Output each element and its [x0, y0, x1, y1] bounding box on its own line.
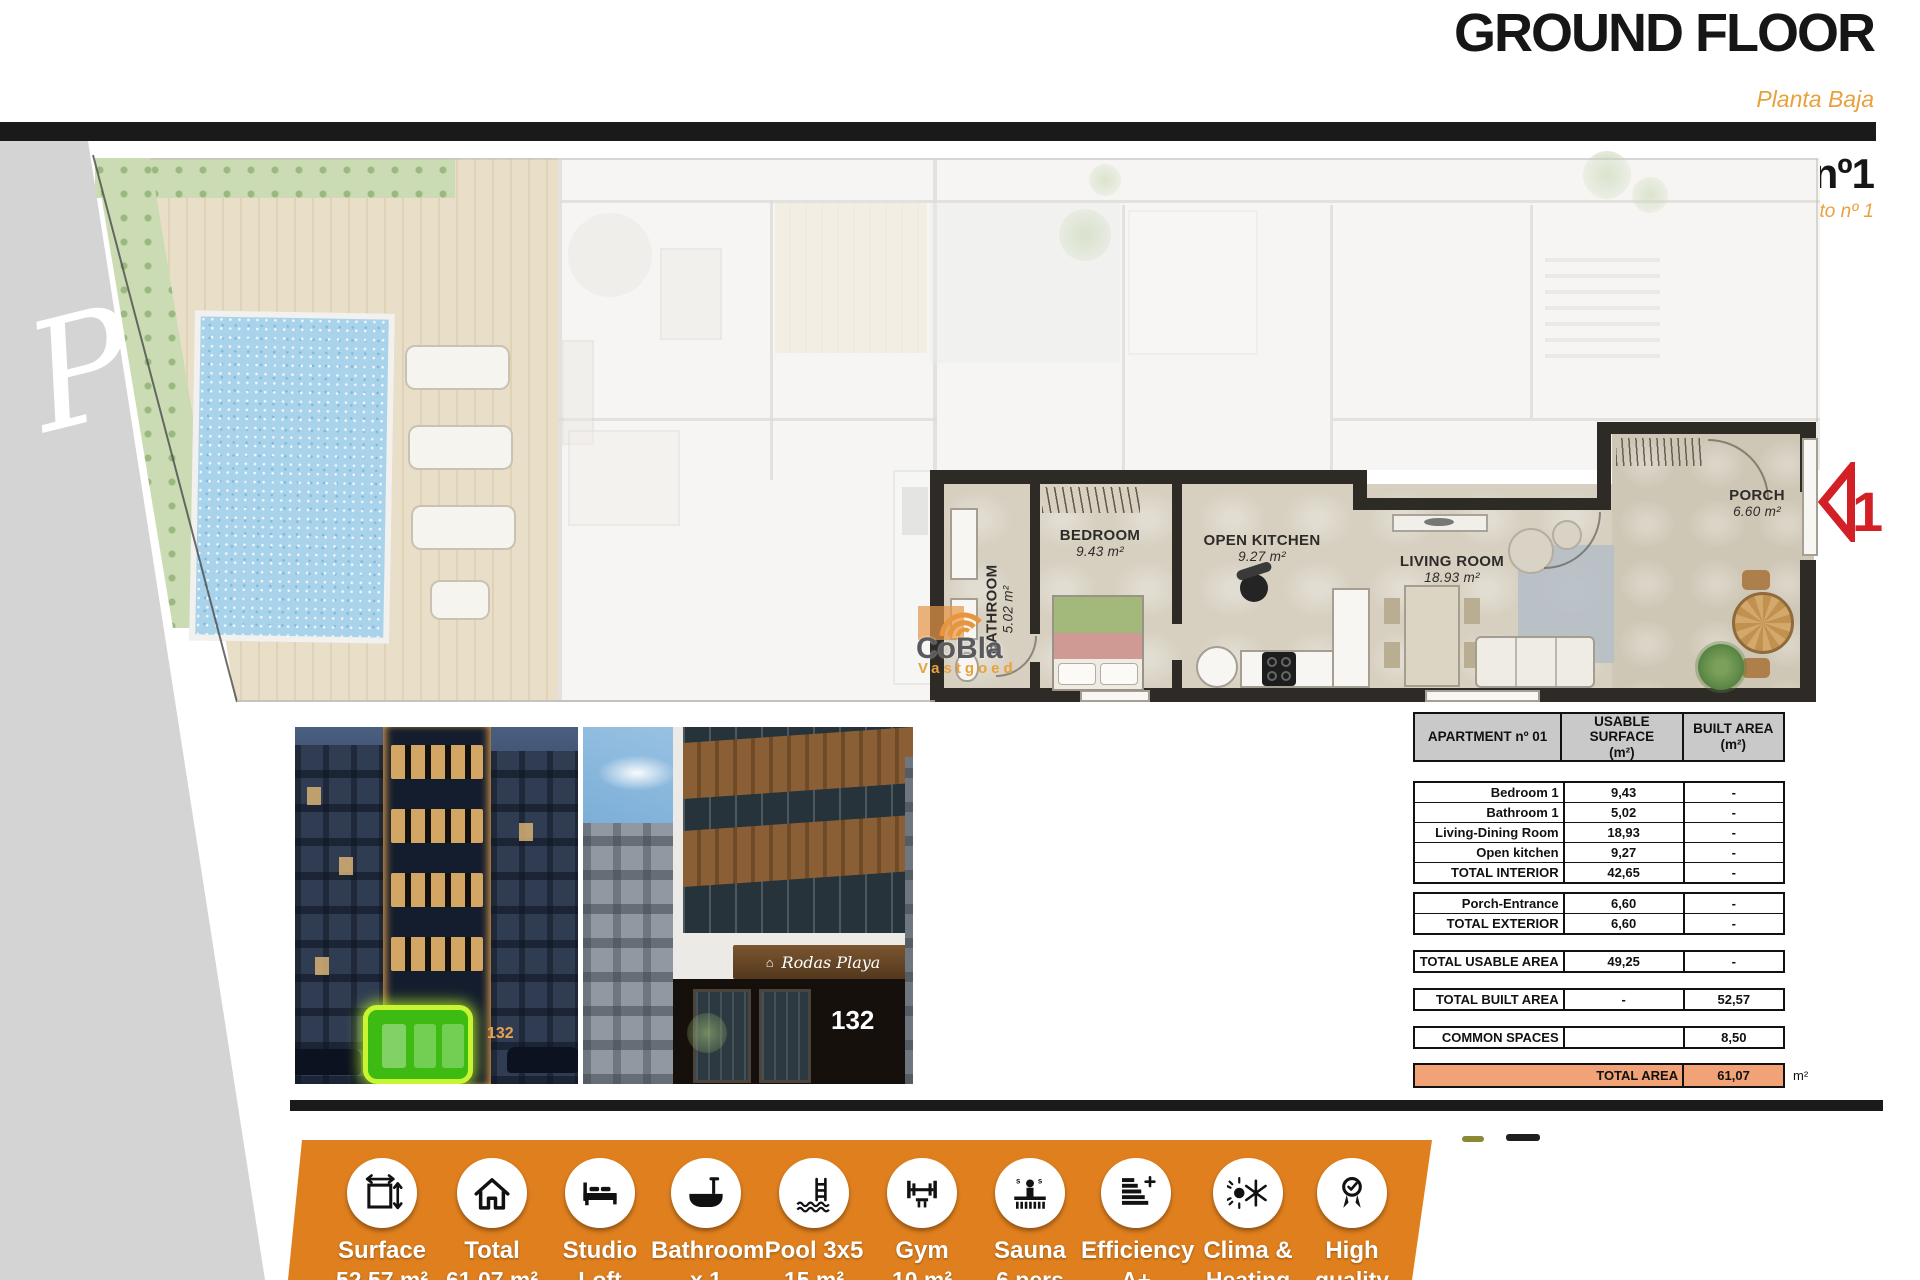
quality-badge-icon — [1317, 1158, 1387, 1228]
row-usable: 18,93 — [1563, 823, 1683, 842]
pool-ladder-icon — [779, 1158, 849, 1228]
wall — [1800, 560, 1816, 702]
table-header-built: BUILT AREA (m²) — [1682, 714, 1783, 760]
amenity-value: 6 pers — [975, 1267, 1085, 1280]
room-label-kitchen: OPEN KITCHEN 9.27 m² — [1187, 532, 1337, 565]
row-usable: 49,25 — [1563, 952, 1683, 971]
amenity-label: Total — [437, 1237, 547, 1265]
row-usable: 42,65 — [1563, 863, 1683, 882]
hob-burner — [1281, 657, 1291, 667]
row-label: Open kitchen — [1415, 843, 1563, 862]
street-number: 132 — [831, 1005, 874, 1036]
deck-table — [430, 580, 490, 620]
table-interior-group: Bedroom 19,43- Bathroom 15,02- Living-Di… — [1413, 781, 1785, 884]
page-title: GROUND FLOOR — [1454, 2, 1874, 64]
porch-chair — [1742, 570, 1770, 590]
row-built: - — [1683, 914, 1783, 933]
table-row: TOTAL BUILT AREA-52,57 — [1415, 990, 1783, 1009]
table-row: Bathroom 15,02- — [1415, 802, 1783, 822]
sign-logo-icon: ⌂ — [766, 955, 774, 970]
svg-text:s: s — [1016, 1176, 1021, 1185]
faded-overlay — [558, 470, 937, 702]
total-area-label: TOTAL AREA — [1415, 1065, 1682, 1086]
bathtub-icon — [671, 1158, 741, 1228]
table-row: COMMON SPACES8,50 — [1415, 1028, 1783, 1047]
bed-cover — [1054, 633, 1142, 659]
logo-tagline: Vastgoed — [918, 660, 1017, 677]
amenity-total: Total 61.07 m² — [437, 1158, 547, 1280]
kitchen-label: OPEN KITCHEN — [1187, 532, 1337, 549]
highlighted-apartment-box — [363, 1005, 473, 1084]
sofa-cushion-line — [1515, 638, 1517, 686]
row-label: Bathroom 1 — [1415, 803, 1563, 822]
bottom-divider-bar — [290, 1100, 1883, 1111]
row-usable: 6,60 — [1563, 894, 1683, 913]
amenity-quality: High quality — [1297, 1158, 1407, 1280]
row-label: TOTAL USABLE AREA — [1415, 952, 1563, 971]
amenity-sauna: ss Sauna 6 pers — [975, 1158, 1085, 1280]
house-icon — [457, 1158, 527, 1228]
sun-snowflake-icon — [1213, 1158, 1283, 1228]
row-usable: - — [1563, 990, 1683, 1009]
built-area-line2: (m²) — [1721, 737, 1747, 753]
wall — [1172, 484, 1182, 624]
street-number: 132 — [487, 1025, 514, 1043]
porch-plant — [1698, 644, 1744, 690]
table-header-usable: USABLE SURFACE (m²) — [1560, 714, 1681, 760]
lit-window — [519, 823, 533, 841]
row-built: - — [1683, 843, 1783, 862]
night-building-photo: 132 — [295, 727, 578, 1084]
parked-car — [295, 1049, 361, 1075]
kitchen-counter-tall — [1332, 588, 1370, 688]
amenity-label: Surface — [327, 1237, 437, 1265]
wardrobe-hatch — [1042, 487, 1140, 513]
entrance-plant — [687, 1013, 727, 1053]
room-label-porch: PORCH 6.60 m² — [1697, 487, 1817, 520]
surface-icon — [347, 1158, 417, 1228]
amenity-value: quality — [1297, 1267, 1407, 1280]
svg-text:s: s — [1038, 1176, 1043, 1185]
bed-blanket — [1054, 597, 1142, 633]
lit-window — [307, 787, 321, 805]
dining-chair — [1384, 598, 1400, 624]
row-label: Porch-Entrance — [1415, 894, 1563, 913]
shower — [950, 508, 978, 580]
table-row: Open kitchen9,27- — [1415, 842, 1783, 862]
hob-burner — [1267, 657, 1277, 667]
wall — [1172, 660, 1182, 688]
hob-burner — [1267, 671, 1277, 681]
amenity-label: Bathroom — [651, 1237, 761, 1265]
facade-sign: ⌂ Rodas Playa — [733, 945, 913, 979]
amenity-label: Efficiency — [1081, 1237, 1191, 1265]
pillow — [1058, 663, 1096, 685]
amenity-pool: Pool 3x5 15 m² — [759, 1158, 869, 1280]
table-total-area: TOTAL AREA 61,07 — [1413, 1063, 1785, 1088]
dining-chair — [1384, 642, 1400, 668]
header-divider-bar — [0, 122, 1876, 141]
row-label: TOTAL BUILT AREA — [1415, 990, 1563, 1009]
dining-table — [1404, 585, 1460, 687]
table-row: TOTAL EXTERIOR6,60- — [1415, 913, 1783, 933]
living-area: 18.93 m² — [1382, 570, 1522, 586]
sun-lounger — [405, 345, 510, 390]
porch-hedge-hatch — [1616, 438, 1704, 466]
table-header-apartment: APARTMENT nº 01 — [1415, 714, 1560, 760]
lit-floor — [391, 873, 483, 907]
sun-lounger — [408, 425, 513, 470]
pouf — [1552, 520, 1582, 550]
wall — [1360, 498, 1610, 510]
total-area-unit: m² — [1793, 1068, 1808, 1083]
sideboard-dish — [1424, 518, 1454, 526]
amenity-studio: Studio Loft — [545, 1158, 655, 1280]
highlight-window — [442, 1024, 464, 1068]
day-building-photo: ⌂ Rodas Playa 132 — [583, 727, 913, 1084]
row-built: - — [1683, 863, 1783, 882]
amenity-label: High — [1297, 1237, 1407, 1265]
lit-window — [315, 957, 329, 975]
neighbor-building — [583, 823, 679, 1084]
highlight-window — [414, 1024, 436, 1068]
total-area-value: 61,07 — [1682, 1065, 1783, 1086]
pillow — [1100, 663, 1138, 685]
pool — [189, 310, 395, 643]
row-label: Living-Dining Room — [1415, 823, 1563, 842]
hob — [1262, 652, 1296, 686]
lit-floor — [391, 809, 483, 843]
hob-burner — [1281, 671, 1291, 681]
built-area-line1: BUILT AREA — [1693, 721, 1773, 737]
parked-car — [507, 1047, 578, 1073]
row-label: TOTAL INTERIOR — [1415, 863, 1563, 882]
highlight-door — [382, 1024, 406, 1068]
bedroom-area: 9.43 m² — [1030, 544, 1170, 560]
table-row: Bedroom 19,43- — [1415, 783, 1783, 802]
amenity-value: 10 m² — [867, 1267, 977, 1280]
lit-window — [339, 857, 353, 875]
amenity-climate: Clima & Heating — [1193, 1158, 1303, 1280]
lit-floor — [391, 745, 483, 779]
porch-table — [1732, 592, 1794, 654]
entrance-window — [759, 989, 811, 1083]
table-usable-total: TOTAL USABLE AREA49,25- — [1413, 950, 1785, 973]
dining-chair — [1464, 598, 1480, 624]
kitchen-area: 9.27 m² — [1187, 549, 1337, 565]
table-built-total: TOTAL BUILT AREA-52,57 — [1413, 988, 1785, 1011]
row-built: 52,57 — [1683, 990, 1783, 1009]
row-usable — [1563, 1028, 1683, 1047]
amenity-surface: Surface 52.57 m² — [327, 1158, 437, 1280]
table-row-total: TOTAL AREA 61,07 — [1415, 1065, 1783, 1086]
amenity-value: x 1 — [651, 1267, 761, 1280]
amenity-bathroom: Bathroom x 1 — [651, 1158, 761, 1280]
amenity-value: Loft — [545, 1267, 655, 1280]
small-mark — [1462, 1136, 1484, 1142]
bedroom-label: BEDROOM — [1030, 527, 1170, 544]
amenity-label: Gym — [867, 1237, 977, 1265]
row-built: - — [1683, 823, 1783, 842]
amenity-value: Heating — [1193, 1267, 1303, 1280]
amenity-value: A+ — [1081, 1267, 1191, 1280]
row-built: 8,50 — [1683, 1028, 1783, 1047]
bathroom-area: 5.02 m² — [1001, 539, 1017, 679]
living-label: LIVING ROOM — [1382, 553, 1522, 570]
row-usable: 9,43 — [1563, 783, 1683, 802]
window — [1080, 690, 1150, 702]
amenity-label: Studio — [545, 1237, 655, 1265]
fridge — [1196, 646, 1238, 688]
usable-surface-line2: (m²) — [1609, 745, 1635, 761]
amenity-value: 15 m² — [759, 1267, 869, 1280]
porch-label: PORCH — [1697, 487, 1817, 504]
sauna-icon: ss — [995, 1158, 1065, 1228]
window — [1425, 690, 1540, 702]
table-row: Living-Dining Room18,93- — [1415, 822, 1783, 842]
bed-icon — [565, 1158, 635, 1228]
wall — [930, 470, 1367, 484]
brochure-page: GROUND FLOOR Planta Baja Apartment nº1 A… — [0, 0, 1920, 1280]
sign-text: Rodas Playa — [782, 953, 881, 972]
row-built: - — [1683, 952, 1783, 971]
wall — [1030, 662, 1040, 688]
row-built: - — [1683, 894, 1783, 913]
small-mark — [1506, 1134, 1540, 1141]
amenity-value: 52.57 m² — [327, 1267, 437, 1280]
neighbor-sliver — [905, 757, 913, 1084]
lit-floor — [391, 937, 483, 971]
energy-rating-icon — [1101, 1158, 1171, 1228]
sofa-cushion-line — [1555, 638, 1557, 686]
row-usable: 5,02 — [1563, 803, 1683, 822]
amenity-gym: Gym 10 m² — [867, 1158, 977, 1280]
sun-lounger — [411, 505, 516, 550]
amenity-value: 61.07 m² — [437, 1267, 547, 1280]
table-row: TOTAL USABLE AREA49,25- — [1415, 952, 1783, 971]
row-built: - — [1683, 783, 1783, 802]
row-usable: 6,60 — [1563, 914, 1683, 933]
row-label: Bedroom 1 — [1415, 783, 1563, 802]
wall — [1597, 422, 1611, 510]
amenity-label: Clima & — [1193, 1237, 1303, 1265]
row-built: - — [1683, 803, 1783, 822]
table-common-spaces: COMMON SPACES8,50 — [1413, 1026, 1785, 1049]
row-label: COMMON SPACES — [1415, 1028, 1563, 1047]
usable-surface-line1: USABLE SURFACE — [1562, 714, 1681, 745]
amenity-label: Sauna — [975, 1237, 1085, 1265]
table-exterior-group: Porch-Entrance6,60- TOTAL EXTERIOR6,60- — [1413, 892, 1785, 935]
row-label: TOTAL EXTERIOR — [1415, 914, 1563, 933]
barbell-icon — [887, 1158, 957, 1228]
table-row: TOTAL INTERIOR42,65- — [1415, 862, 1783, 882]
cloud — [597, 755, 677, 791]
apartment-marker-number: 1 — [1852, 484, 1883, 540]
porch-area: 6.60 m² — [1697, 504, 1817, 520]
amenity-efficiency: Efficiency A+ — [1081, 1158, 1191, 1280]
row-usable: 9,27 — [1563, 843, 1683, 862]
sofa — [1475, 636, 1595, 688]
room-label-bedroom: BEDROOM 9.43 m² — [1030, 527, 1170, 560]
table-header: APARTMENT nº 01 USABLE SURFACE (m²) BUIL… — [1413, 712, 1785, 762]
page-subtitle: Planta Baja — [1756, 86, 1874, 113]
wall — [1610, 422, 1816, 434]
room-label-living: LIVING ROOM 18.93 m² — [1382, 553, 1522, 586]
amenity-label: Pool 3x5 — [759, 1237, 869, 1265]
porch-chair — [1742, 658, 1770, 678]
table-row: Porch-Entrance6,60- — [1415, 894, 1783, 913]
